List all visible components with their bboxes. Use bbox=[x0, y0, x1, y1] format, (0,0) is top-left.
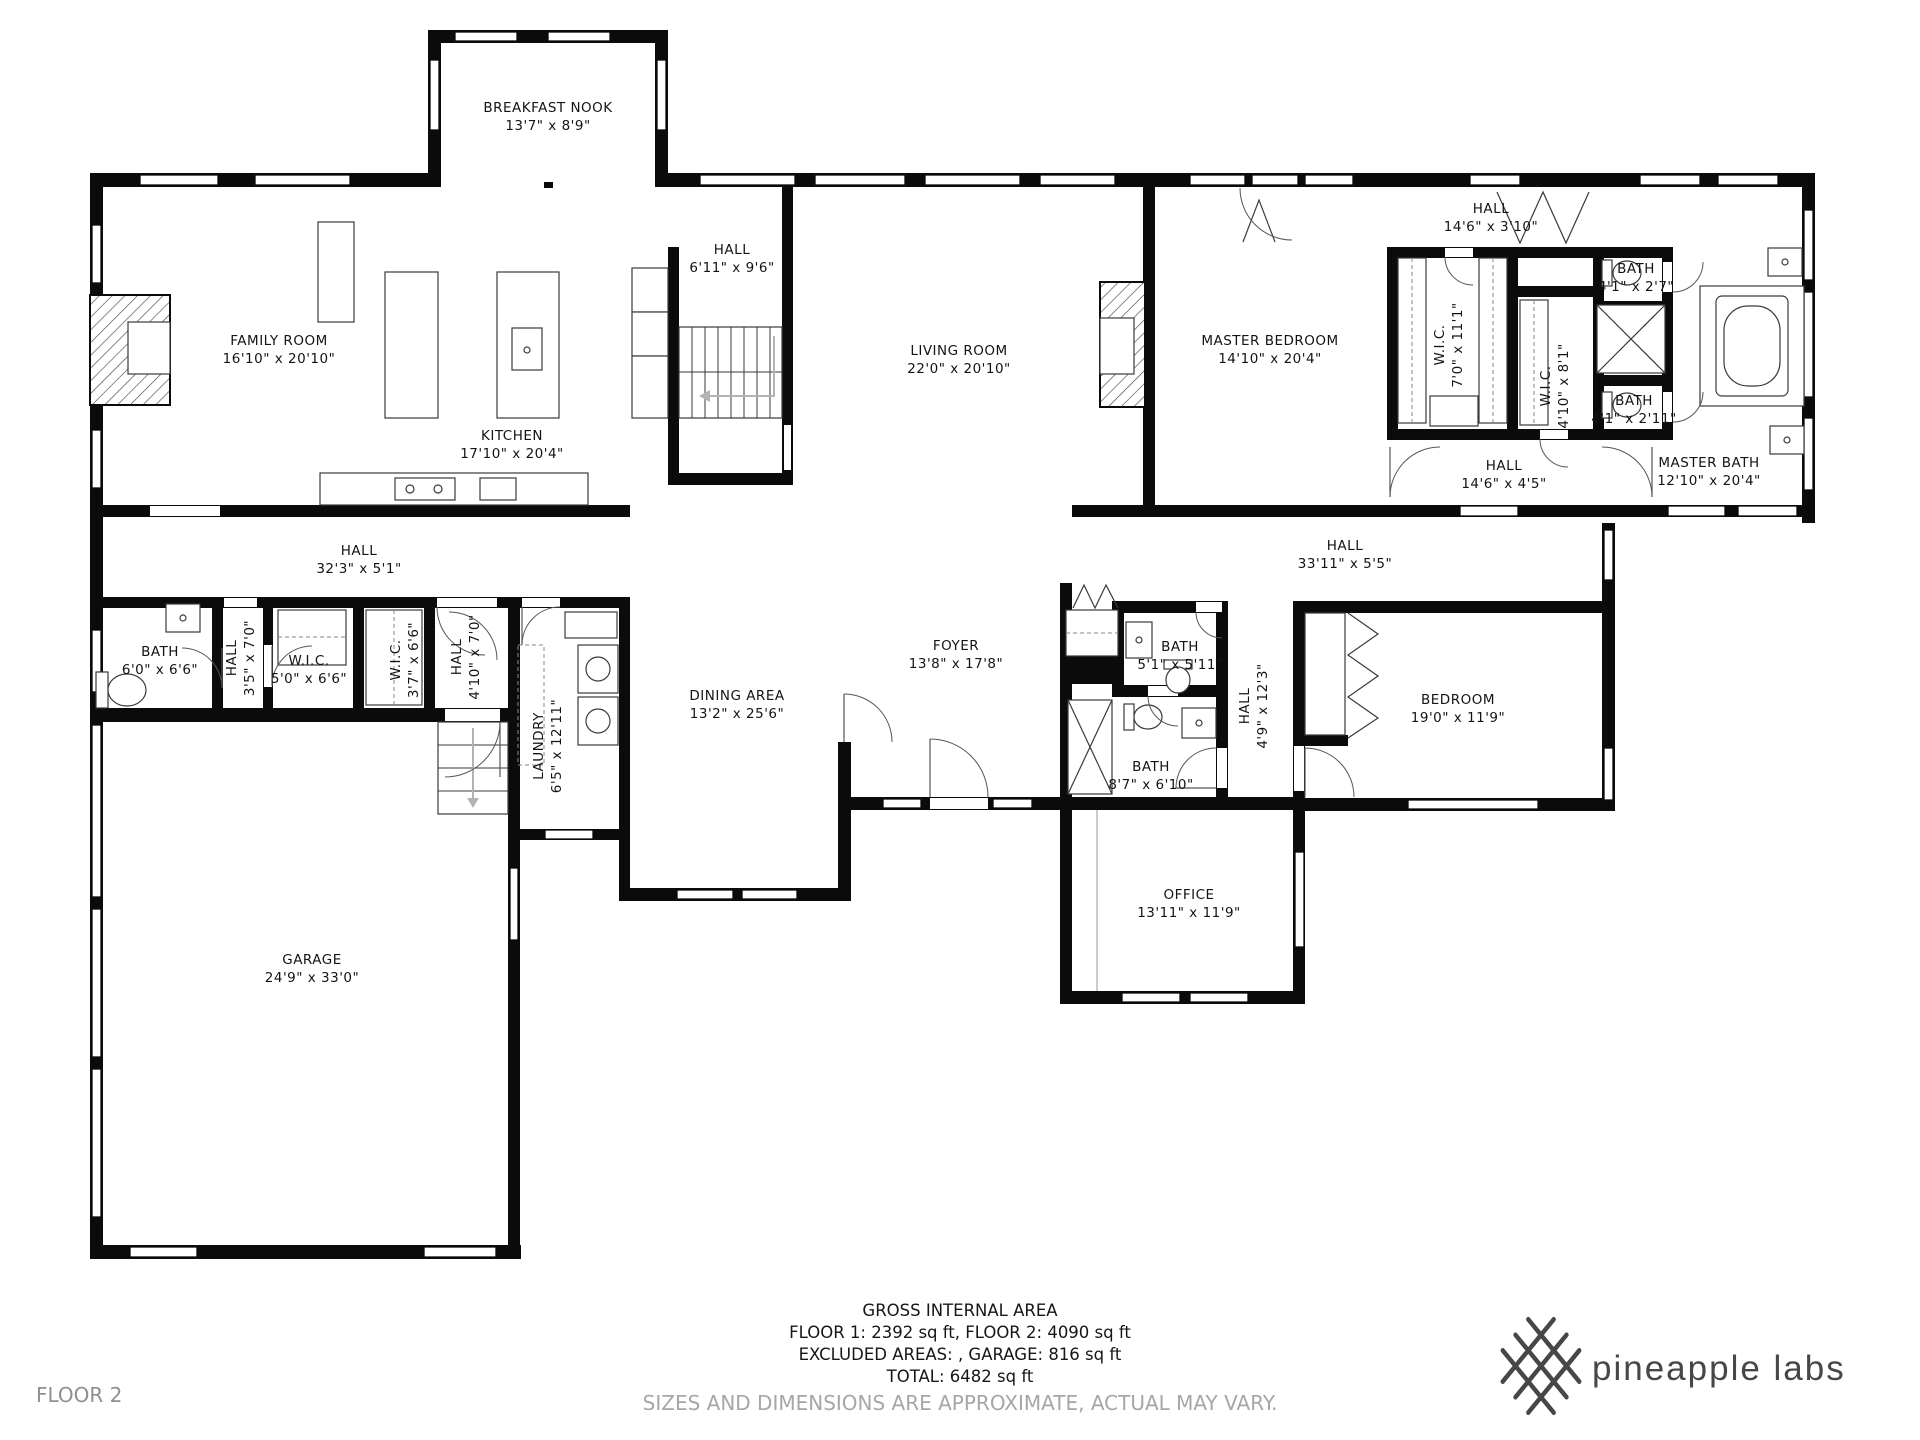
svg-text:14'6" x 3'10": 14'6" x 3'10" bbox=[1444, 219, 1538, 235]
room-label-bath-left: BATH 6'0" x 6'6" bbox=[122, 644, 198, 678]
svg-text:HALL: HALL bbox=[1486, 458, 1522, 474]
svg-text:6'11" x 9'6": 6'11" x 9'6" bbox=[689, 260, 774, 276]
svg-text:6'5" x 12'11": 6'5" x 12'11" bbox=[549, 699, 565, 793]
svg-text:4'10" x 7'0": 4'10" x 7'0" bbox=[467, 614, 483, 699]
toilet bbox=[1134, 705, 1162, 729]
svg-text:13'2" x 25'6": 13'2" x 25'6" bbox=[690, 706, 784, 722]
svg-text:BATH: BATH bbox=[1161, 639, 1199, 655]
svg-text:4'1" x 2'11": 4'1" x 2'11" bbox=[1591, 411, 1676, 427]
svg-text:MASTER BATH: MASTER BATH bbox=[1658, 455, 1759, 471]
svg-text:MASTER BEDROOM: MASTER BEDROOM bbox=[1201, 333, 1338, 349]
svg-text:BATH: BATH bbox=[1132, 759, 1170, 775]
svg-text:24'9" x 33'0": 24'9" x 33'0" bbox=[265, 970, 359, 986]
room-label-master-bath: MASTER BATH 12'10" x 20'4" bbox=[1657, 455, 1761, 489]
bedroom-closet-bifold-doors bbox=[1348, 613, 1378, 738]
svg-text:HALL: HALL bbox=[449, 639, 465, 675]
svg-text:4'9" x 12'3": 4'9" x 12'3" bbox=[1255, 663, 1271, 748]
svg-text:LIVING ROOM: LIVING ROOM bbox=[910, 343, 1007, 359]
pineapple-lattice-icon bbox=[1490, 1304, 1592, 1428]
summary-floors: FLOOR 1: 2392 sq ft, FLOOR 2: 4090 sq ft bbox=[789, 1323, 1131, 1342]
svg-text:BATH: BATH bbox=[141, 644, 179, 660]
room-label-hall-upper: HALL 6'11" x 9'6" bbox=[689, 242, 774, 276]
room-label-kitchen: KITCHEN 17'10" x 20'4" bbox=[460, 428, 564, 462]
room-label-family-room: FAMILY ROOM 16'10" x 20'10" bbox=[223, 333, 336, 367]
room-label-wic-master-1: W.I.C. 7'0" x 11'1" bbox=[1432, 302, 1466, 387]
svg-text:W.I.C.: W.I.C. bbox=[1538, 365, 1554, 406]
svg-text:7'0" x 11'1": 7'0" x 11'1" bbox=[1450, 302, 1466, 387]
svg-text:HALL: HALL bbox=[224, 640, 240, 676]
svg-text:BEDROOM: BEDROOM bbox=[1421, 692, 1495, 708]
svg-text:16'10" x 20'10": 16'10" x 20'10" bbox=[223, 351, 336, 367]
svg-text:BATH: BATH bbox=[1617, 261, 1655, 277]
svg-text:DINING AREA: DINING AREA bbox=[689, 688, 784, 704]
room-label-bath-87: BATH 8'7" x 6'10" bbox=[1108, 759, 1193, 793]
svg-text:W.I.C.: W.I.C. bbox=[288, 653, 329, 669]
area-summary: GROSS INTERNAL AREA FLOOR 1: 2392 sq ft,… bbox=[643, 1301, 1278, 1415]
room-label-hall-410: HALL 4'10" x 7'0" bbox=[449, 614, 483, 699]
floor-plan-page: BREAKFAST NOOK 13'7" x 8'9" FAMILY ROOM … bbox=[0, 0, 1920, 1440]
svg-text:32'3" x 5'1": 32'3" x 5'1" bbox=[316, 561, 401, 577]
branding: pineapple labs bbox=[1490, 1304, 1846, 1428]
svg-text:W.I.C.: W.I.C. bbox=[1432, 324, 1448, 365]
svg-text:FOYER: FOYER bbox=[933, 638, 979, 654]
svg-text:BREAKFAST NOOK: BREAKFAST NOOK bbox=[483, 100, 613, 116]
room-label-hall-right: HALL 33'11" x 5'5" bbox=[1298, 538, 1392, 572]
svg-text:GARAGE: GARAGE bbox=[282, 952, 342, 968]
svg-text:5'1" x 5'11": 5'1" x 5'11" bbox=[1137, 657, 1222, 673]
svg-text:HALL: HALL bbox=[1327, 538, 1363, 554]
kitchen-island-sink bbox=[497, 272, 559, 418]
summary-total: TOTAL: 6482 sq ft bbox=[886, 1367, 1034, 1386]
toilet bbox=[96, 672, 108, 708]
kitchen-fridge bbox=[632, 268, 668, 312]
sink bbox=[1770, 426, 1804, 454]
summary-excluded: EXCLUDED AREAS: , GARAGE: 816 sq ft bbox=[799, 1345, 1122, 1364]
room-label-laundry: LAUNDRY 6'5" x 12'11" bbox=[531, 699, 565, 793]
svg-text:KITCHEN: KITCHEN bbox=[481, 428, 543, 444]
master-hall-closet-doors bbox=[1497, 192, 1589, 243]
room-label-hall-top-right: HALL 14'6" x 3'10" bbox=[1444, 201, 1538, 235]
room-label-dining-area: DINING AREA 13'2" x 25'6" bbox=[689, 688, 784, 722]
svg-text:14'6" x 4'5": 14'6" x 4'5" bbox=[1461, 476, 1546, 492]
sink bbox=[1182, 708, 1216, 738]
svg-text:13'8" x 17'8": 13'8" x 17'8" bbox=[909, 656, 1003, 672]
laundry-counter bbox=[565, 612, 617, 638]
room-label-living-room: LIVING ROOM 22'0" x 20'10" bbox=[907, 343, 1011, 377]
svg-text:W.I.C.: W.I.C. bbox=[388, 639, 404, 680]
room-labels: BREAKFAST NOOK 13'7" x 8'9" FAMILY ROOM … bbox=[122, 100, 1761, 986]
svg-text:FAMILY ROOM: FAMILY ROOM bbox=[230, 333, 327, 349]
svg-text:14'10" x 20'4": 14'10" x 20'4" bbox=[1218, 351, 1322, 367]
sink bbox=[1768, 248, 1802, 276]
floor-label: FLOOR 2 bbox=[36, 1383, 122, 1407]
svg-text:33'11" x 5'5": 33'11" x 5'5" bbox=[1298, 556, 1392, 572]
brand-wordmark: pineapple labs bbox=[1592, 1349, 1846, 1388]
svg-text:5'0" x 6'6": 5'0" x 6'6" bbox=[271, 671, 347, 687]
room-label-master-bedroom: MASTER BEDROOM 14'10" x 20'4" bbox=[1201, 333, 1338, 367]
svg-text:HALL: HALL bbox=[341, 543, 377, 559]
svg-text:OFFICE: OFFICE bbox=[1163, 887, 1214, 903]
room-label-hall-49: HALL 4'9" x 12'3" bbox=[1237, 663, 1271, 748]
svg-text:12'10" x 20'4": 12'10" x 20'4" bbox=[1657, 473, 1761, 489]
nook-tick bbox=[544, 182, 553, 188]
svg-text:HALL: HALL bbox=[714, 242, 750, 258]
sink bbox=[166, 604, 200, 632]
kitchen-cabinet bbox=[318, 222, 354, 322]
room-label-foyer: FOYER 13'8" x 17'8" bbox=[909, 638, 1003, 672]
svg-text:17'10" x 20'4": 17'10" x 20'4" bbox=[460, 446, 564, 462]
svg-text:3'5" x 7'0": 3'5" x 7'0" bbox=[242, 620, 258, 696]
svg-text:13'11" x 11'9": 13'11" x 11'9" bbox=[1137, 905, 1241, 921]
svg-text:3'7" x 6'6": 3'7" x 6'6" bbox=[406, 622, 422, 698]
room-label-hall-master: HALL 14'6" x 4'5" bbox=[1461, 458, 1546, 492]
svg-text:LAUNDRY: LAUNDRY bbox=[531, 712, 547, 780]
svg-text:22'0" x 20'10": 22'0" x 20'10" bbox=[907, 361, 1011, 377]
svg-text:4'1" x 2'7": 4'1" x 2'7" bbox=[1598, 279, 1674, 295]
kitchen-island bbox=[385, 272, 438, 418]
svg-text:6'0" x 6'6": 6'0" x 6'6" bbox=[122, 662, 198, 678]
room-label-hall-35: HALL 3'5" x 7'0" bbox=[224, 620, 258, 696]
svg-text:4'10" x 8'1": 4'10" x 8'1" bbox=[1556, 343, 1572, 428]
foyer-closet-doors bbox=[1073, 585, 1118, 608]
room-label-breakfast-nook: BREAKFAST NOOK 13'7" x 8'9" bbox=[483, 100, 613, 134]
svg-text:HALL: HALL bbox=[1237, 688, 1253, 724]
room-label-hall-left: HALL 32'3" x 5'1" bbox=[316, 543, 401, 577]
summary-disclaimer: SIZES AND DIMENSIONS ARE APPROXIMATE, AC… bbox=[643, 1391, 1278, 1415]
svg-text:HALL: HALL bbox=[1473, 201, 1509, 217]
room-label-office: OFFICE 13'11" x 11'9" bbox=[1137, 887, 1241, 921]
svg-text:BATH: BATH bbox=[1615, 393, 1653, 409]
bathtub bbox=[1716, 296, 1788, 396]
floor-plan-drawing: BREAKFAST NOOK 13'7" x 8'9" FAMILY ROOM … bbox=[0, 0, 1920, 1440]
svg-text:13'7" x 8'9": 13'7" x 8'9" bbox=[505, 118, 590, 134]
staircase-garage-steps bbox=[438, 722, 508, 814]
svg-text:8'7" x 6'10": 8'7" x 6'10" bbox=[1108, 777, 1193, 793]
summary-title: GROSS INTERNAL AREA bbox=[862, 1301, 1058, 1320]
staircase-main bbox=[679, 327, 782, 418]
dryer bbox=[578, 697, 618, 745]
room-label-garage: GARAGE 24'9" x 33'0" bbox=[265, 952, 359, 986]
washer bbox=[578, 645, 618, 693]
room-label-bedroom: BEDROOM 19'0" x 11'9" bbox=[1411, 692, 1505, 726]
sink bbox=[1126, 622, 1152, 658]
svg-text:19'0" x 11'9": 19'0" x 11'9" bbox=[1411, 710, 1505, 726]
